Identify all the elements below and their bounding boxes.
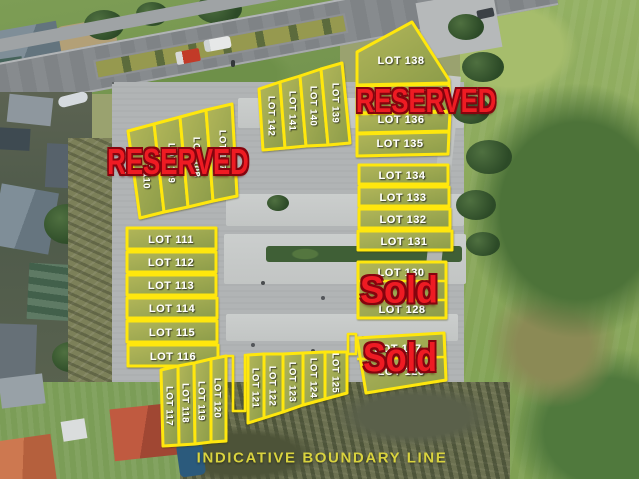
- lot-label-134: LOT 134: [379, 170, 426, 182]
- lot-label-133: LOT 133: [380, 192, 427, 204]
- lot-label-118: LOT 118: [180, 383, 191, 423]
- lot-label-123: LOT 123: [287, 362, 298, 402]
- lot-label-124: LOT 124: [308, 358, 319, 399]
- access-corridor: [348, 334, 356, 354]
- lot-label-122: LOT 122: [267, 366, 278, 406]
- lot-label-115: LOT 115: [149, 327, 195, 339]
- lot-label-140: LOT 140: [308, 86, 319, 126]
- aerial-site-plan: LOT 110 LOT 109 LOT 108 LOT 107 LOT 142 …: [0, 0, 639, 479]
- lot-label-113: LOT 113: [148, 280, 194, 292]
- lot-boundaries-layer: LOT 110 LOT 109 LOT 108 LOT 107 LOT 142 …: [0, 0, 639, 479]
- status-sold-southeast: Sold: [363, 336, 437, 381]
- lot-label-114: LOT 114: [149, 303, 196, 315]
- lot-label-121: LOT 121: [250, 368, 261, 409]
- lot-label-120: LOT 120: [212, 378, 223, 418]
- lot-label-132: LOT 132: [380, 214, 427, 226]
- lot-label-125: LOT 125: [330, 353, 341, 394]
- lot-label-138: LOT 138: [378, 55, 425, 67]
- status-reserved-northeast: RESERVED: [356, 82, 496, 121]
- lot-label-141: LOT 141: [287, 91, 298, 132]
- lot-label-117: LOT 117: [164, 386, 175, 426]
- lot-label-112: LOT 112: [148, 257, 194, 269]
- lot-label-139: LOT 139: [330, 83, 341, 123]
- status-reserved-northwest: RESERVED: [107, 143, 249, 184]
- indicative-boundary-note: INDICATIVE BOUNDARY LINE: [197, 450, 448, 467]
- lot-label-119: LOT 119: [196, 381, 207, 421]
- lot-label-131: LOT 131: [381, 236, 428, 248]
- lot-boundary-138: [357, 22, 449, 85]
- status-sold-east: Sold: [360, 268, 438, 312]
- lot-label-111: LOT 111: [148, 234, 194, 246]
- lot-label-116: LOT 116: [150, 351, 196, 363]
- lot-label-135: LOT 135: [377, 138, 424, 150]
- lot-label-142: LOT 142: [266, 96, 277, 136]
- access-corridor: [226, 355, 248, 411]
